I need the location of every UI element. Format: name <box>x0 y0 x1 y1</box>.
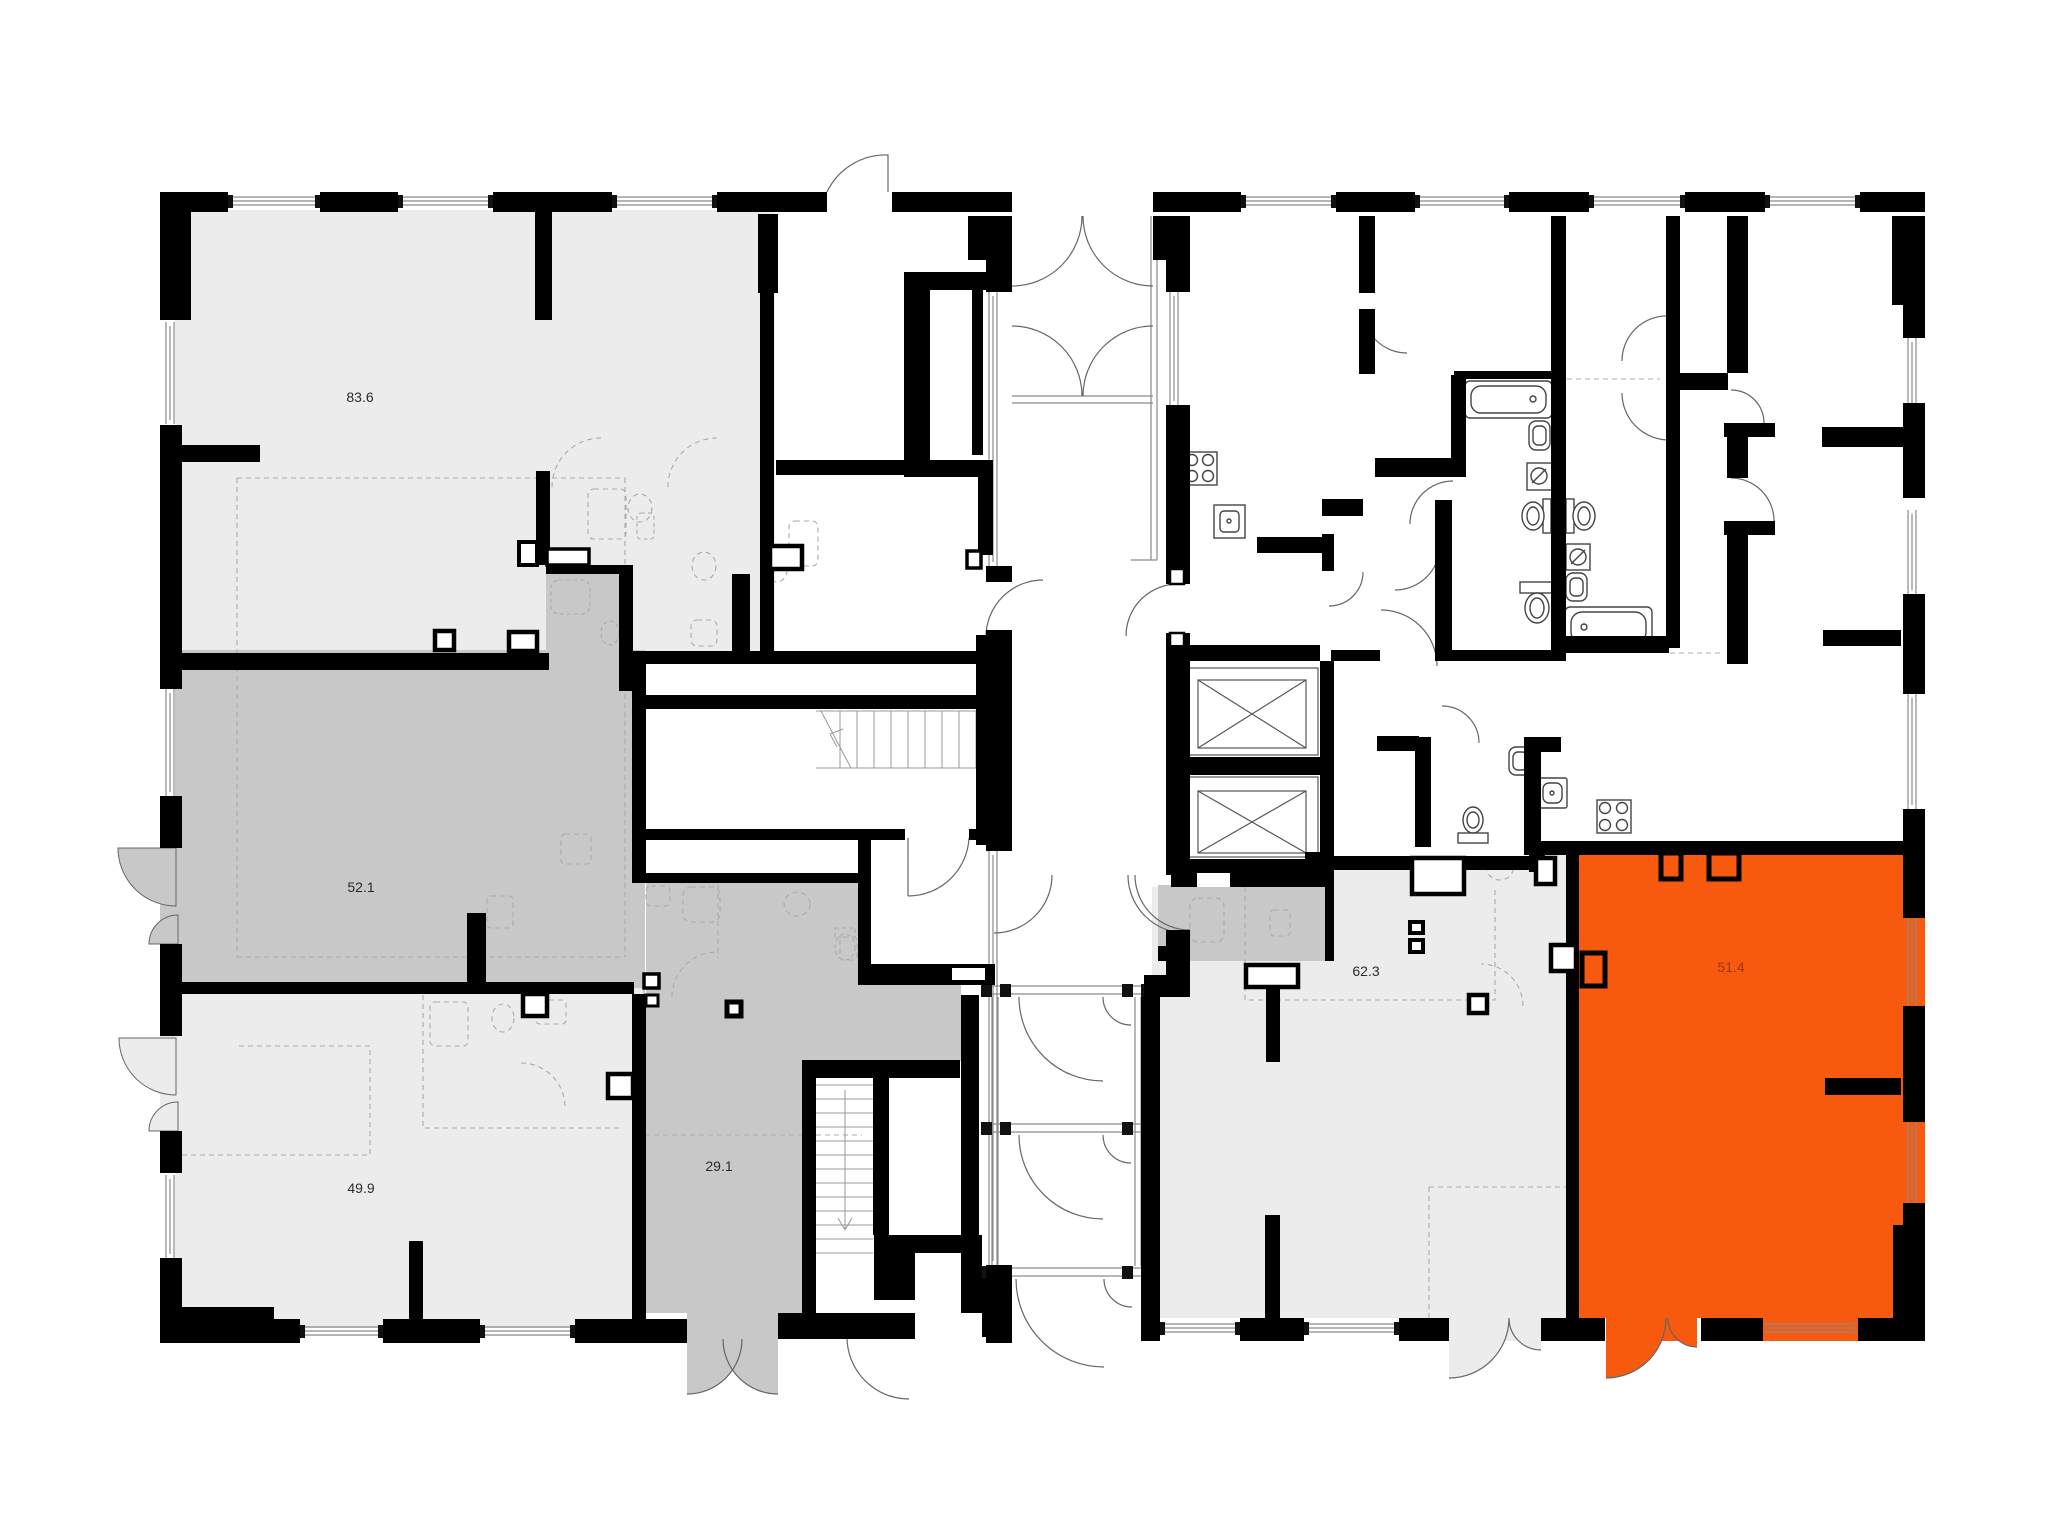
svg-text:51.4: 51.4 <box>1717 959 1744 975</box>
svg-text:83.6: 83.6 <box>346 389 373 405</box>
svg-text:29.1: 29.1 <box>705 1158 732 1174</box>
svg-text:52.1: 52.1 <box>347 879 374 895</box>
svg-text:49.9: 49.9 <box>347 1180 374 1196</box>
svg-text:62.3: 62.3 <box>1352 963 1379 979</box>
